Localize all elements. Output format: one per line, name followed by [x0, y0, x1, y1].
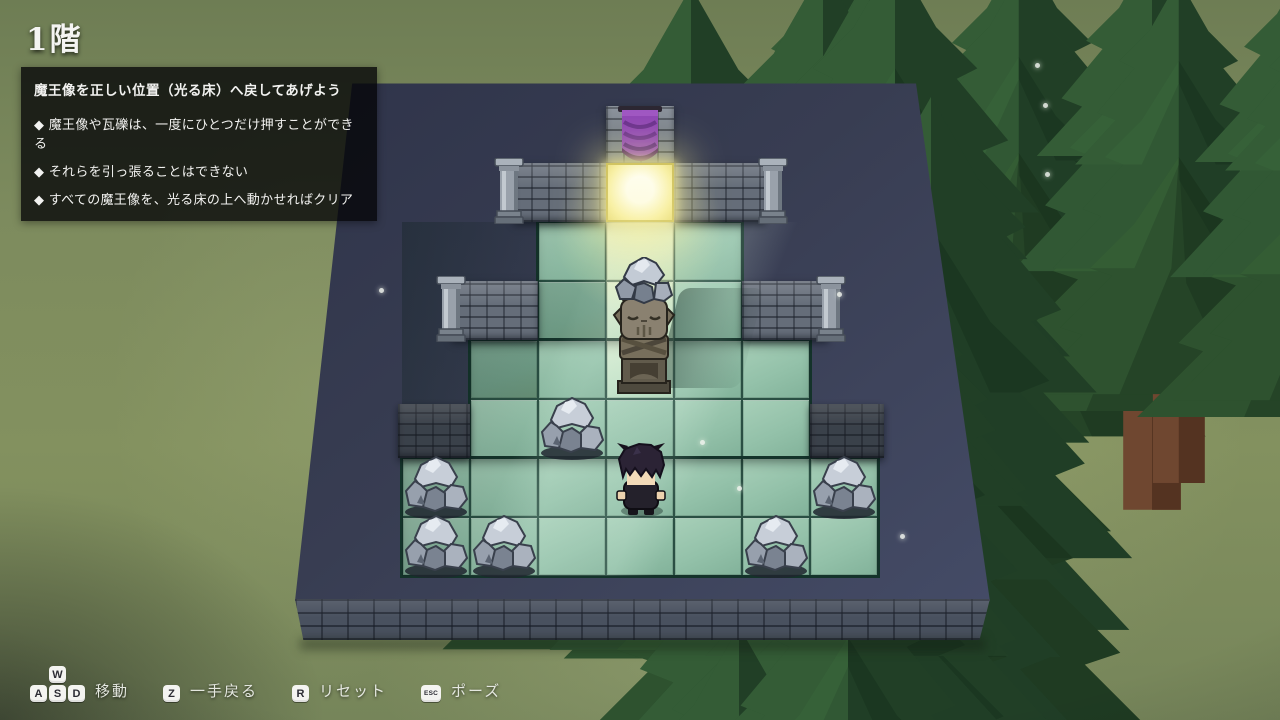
stone-wall — [674, 163, 766, 222]
floor-tile — [402, 458, 470, 517]
floor-tile — [538, 458, 606, 517]
floor-tile — [810, 458, 878, 517]
floor-tile — [538, 517, 606, 576]
floor-tile — [470, 517, 538, 576]
floor-tile — [538, 399, 606, 458]
light-particle — [737, 486, 742, 491]
banner-wall-block — [606, 106, 674, 164]
light-particle — [1045, 172, 1050, 177]
floor-tile — [742, 340, 810, 399]
floor-tile — [606, 399, 674, 458]
floor-tile — [606, 458, 674, 517]
stone-wall — [742, 281, 828, 340]
floor-tile — [810, 517, 878, 576]
floor-tile — [470, 458, 538, 517]
stone-wall — [398, 404, 470, 458]
game-screen: 1階 魔王像を正しい位置（光る床）へ戻してあげよう ◆ 魔王像や瓦礫は、一度にひ… — [0, 0, 1280, 720]
floor-tile — [470, 399, 538, 458]
light-particle — [379, 288, 384, 293]
game-board[interactable] — [0, 0, 1280, 720]
floor-tile — [538, 281, 606, 340]
floor-tile — [674, 281, 742, 340]
floor-tile — [606, 222, 674, 281]
light-particle — [1035, 63, 1040, 68]
floor-tile — [742, 517, 810, 576]
floor-tile — [742, 458, 810, 517]
floor-tile — [470, 340, 538, 399]
light-particle — [700, 440, 705, 445]
floor-tile — [606, 340, 674, 399]
stone-wall — [514, 163, 606, 222]
floor-tile — [606, 517, 674, 576]
light-particle — [1043, 103, 1048, 108]
floor-tile — [538, 340, 606, 399]
floor-tile — [674, 458, 742, 517]
stone-wall — [810, 404, 884, 458]
floor-tile — [674, 340, 742, 399]
floor-tile — [402, 517, 470, 576]
floor-tile — [674, 222, 742, 281]
light-particle — [837, 292, 842, 297]
floor-tile — [674, 399, 742, 458]
floor-tile — [674, 517, 742, 576]
goal-tile-glowing-floor — [606, 163, 674, 222]
light-particle — [900, 534, 905, 539]
floor-tile — [538, 222, 606, 281]
floor-tile — [606, 281, 674, 340]
stone-wall — [452, 281, 538, 340]
floor-tile — [742, 399, 810, 458]
